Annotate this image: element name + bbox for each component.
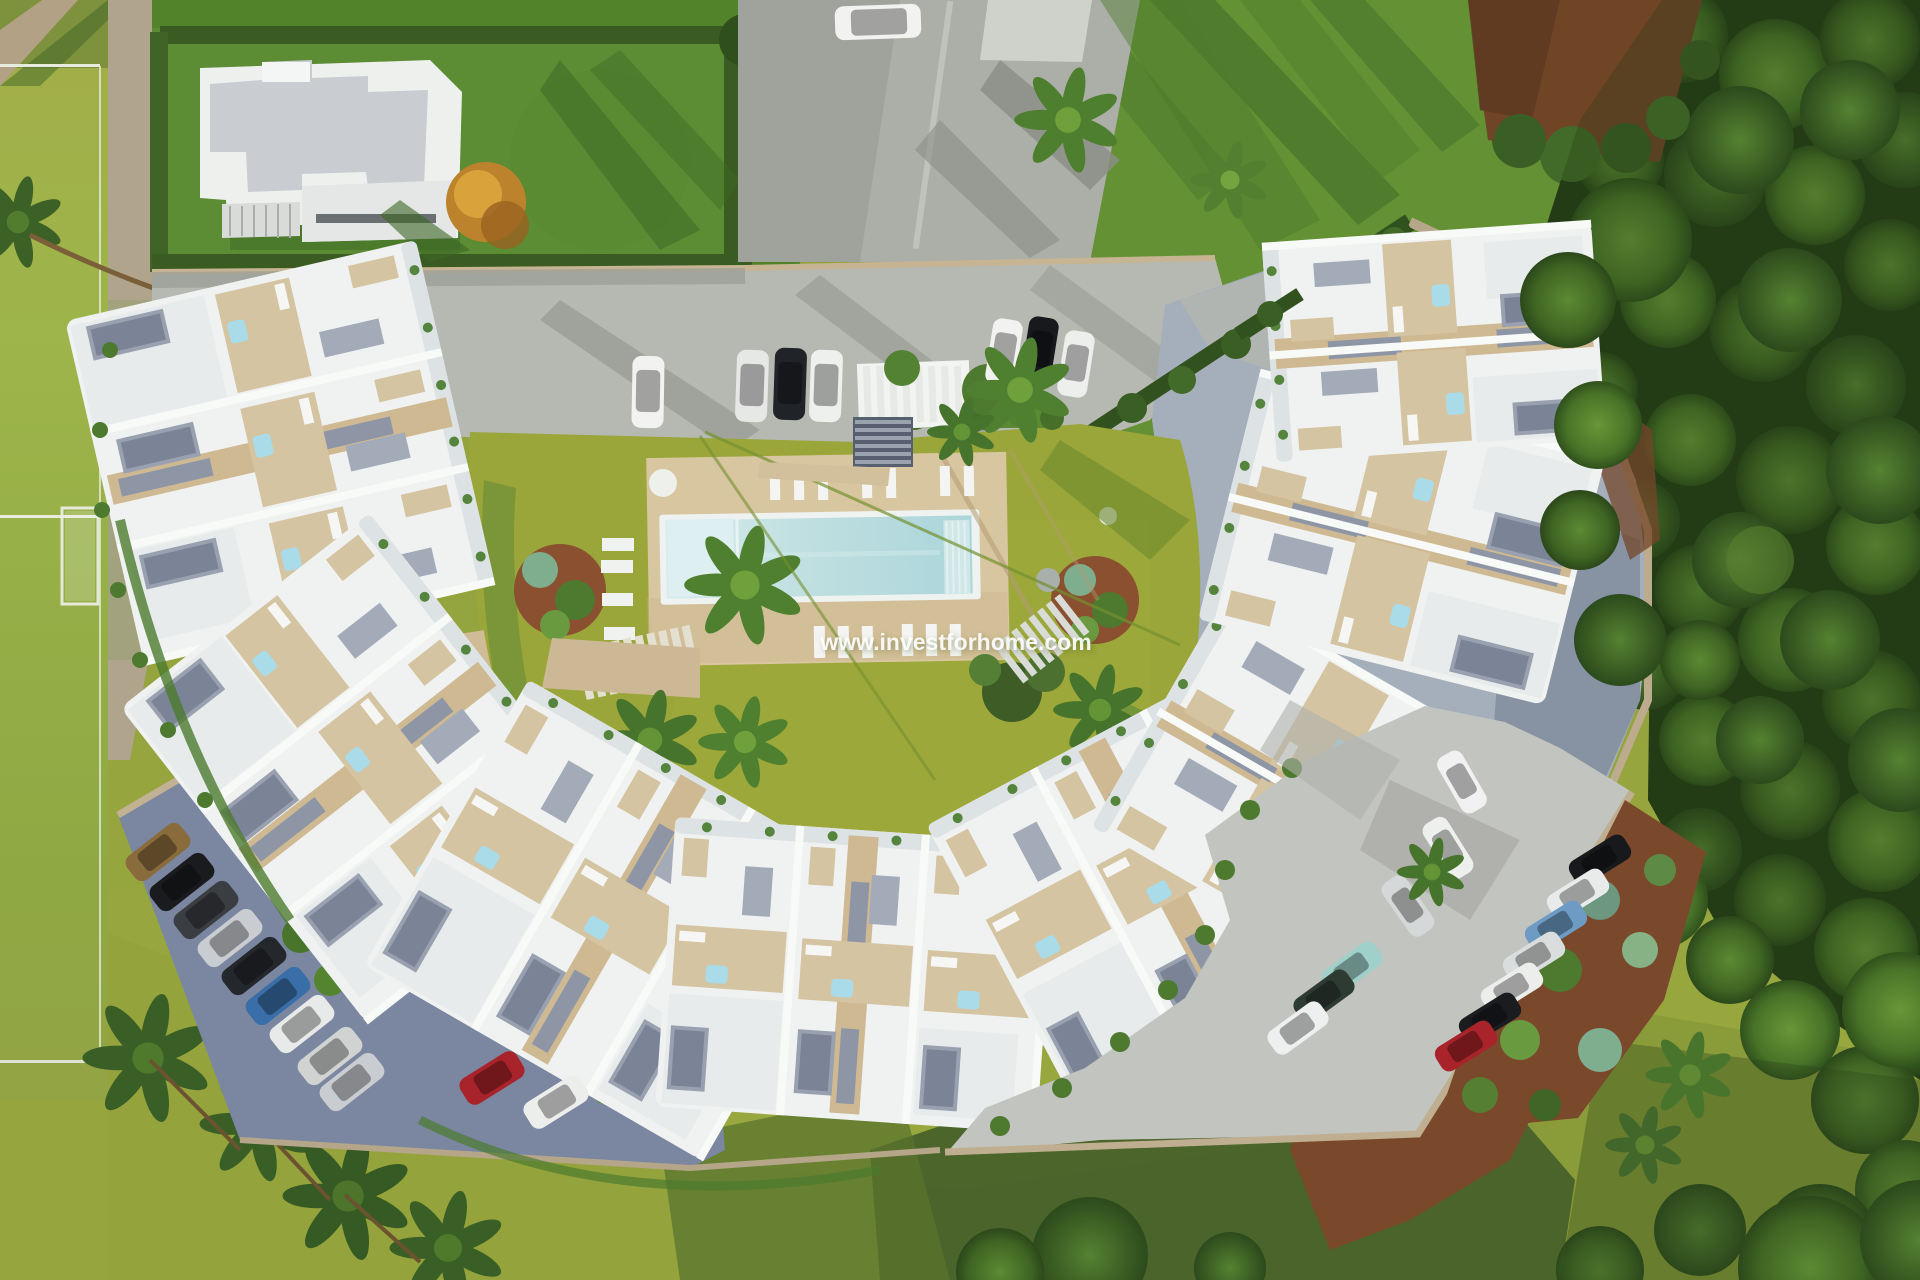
svg-text:www.investforhome.com: www.investforhome.com [819, 629, 1091, 655]
